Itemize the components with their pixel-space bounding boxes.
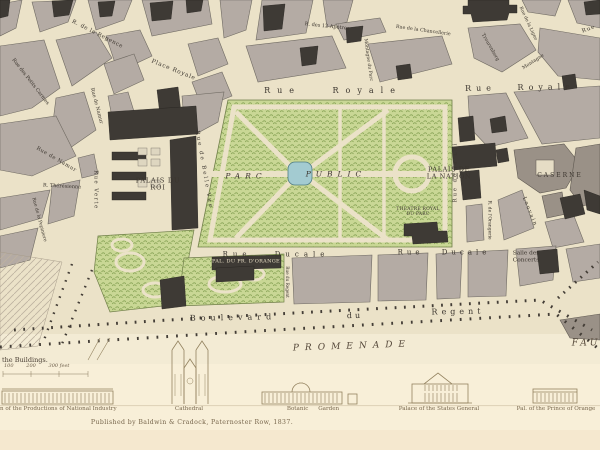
city-block: [436, 252, 462, 299]
salle-line2: Concerts: [513, 257, 540, 264]
street-label-regent-word: Regent: [431, 308, 484, 317]
building: [263, 4, 285, 31]
building: [396, 64, 412, 80]
palais-nation-line2: LA NATION: [427, 174, 471, 181]
palais-du-roi-gallery: [112, 192, 146, 200]
city-block: [378, 253, 428, 301]
street-label-rue-ducale-west: Rue Ducale: [223, 252, 330, 259]
place-label-parc: PARC: [225, 172, 266, 180]
area-label-faubourg-fragment: FAU: [572, 340, 600, 349]
scale-ticks: 100 200 300 feet: [4, 364, 69, 369]
city-block: [292, 255, 372, 304]
place-label-salle-des-concerts: Salle des Concerts: [513, 250, 540, 263]
publisher-imprint: Published by Baldwin & Cradock, Paternos…: [91, 420, 293, 426]
vignette-caption-prince-orange: Pal. of the Prince of Orange: [517, 407, 596, 413]
antique-map-of-brussels: R. de la Regence Place Royale Rue des Pe…: [0, 0, 600, 450]
vignette-caption-botanic: Botanic Garden: [287, 407, 339, 413]
vignette-caption-states-general: Palace of the States General: [399, 407, 479, 413]
building: [496, 148, 509, 163]
palais-du-roi-north-wing: [108, 106, 198, 140]
place-label-palais-orange: PAL. DU PR. D'ORANGE: [212, 260, 280, 265]
salle-line1: Salle des: [513, 250, 540, 257]
city-block: [468, 250, 508, 297]
building: [300, 46, 318, 66]
vignette-exhibition-building: [2, 389, 113, 404]
theatre-line2: DU PARC: [396, 212, 439, 217]
palais-du-roi-line2: ROI: [136, 185, 180, 192]
street-label-rue-royale-west: Rue Royale: [264, 87, 402, 95]
building: [186, 0, 203, 13]
building: [584, 0, 600, 15]
building: [150, 1, 173, 21]
street-label-rue-de-l-orangerie: R. de l'Orangerie: [486, 200, 491, 239]
place-label-public: PUBLIC: [306, 170, 366, 178]
vignette-caption-industry: n of the Productions of National Industr…: [0, 407, 117, 413]
garden-pavilion: [160, 276, 186, 309]
building: [98, 1, 115, 17]
salle-des-concerts-building: [537, 249, 559, 274]
place-label-caserne: CASERNE: [537, 173, 583, 179]
place-label-palais-de-la-nation: PALAIS DE LA NATION: [427, 167, 471, 182]
building: [490, 116, 507, 133]
street-label-rue-ducale-east: Rue Ducale: [398, 250, 491, 257]
place-label-palais-du-roi: PALAIS DU ROI: [136, 178, 180, 193]
palais-nation-building: [458, 116, 475, 142]
street-label-rue-verte: Rue Verte: [92, 170, 97, 209]
place-label-theatre-royal: THEATRE ROYAL DU PARC: [396, 207, 439, 217]
orange-palace-building: [216, 266, 254, 282]
map-canvas: [0, 0, 600, 450]
vignette-prince-orange-palace: [533, 389, 577, 403]
street-label-boulevard-word: Boulevard: [190, 313, 277, 323]
street-label-rue-du-regent: Rue du Regent: [285, 266, 289, 298]
vignette-caption-cathedral: Cathedral: [175, 407, 203, 413]
city-block: [466, 204, 484, 242]
paper-bottom-band: [0, 430, 600, 450]
street-label-du-word: du: [347, 312, 363, 320]
